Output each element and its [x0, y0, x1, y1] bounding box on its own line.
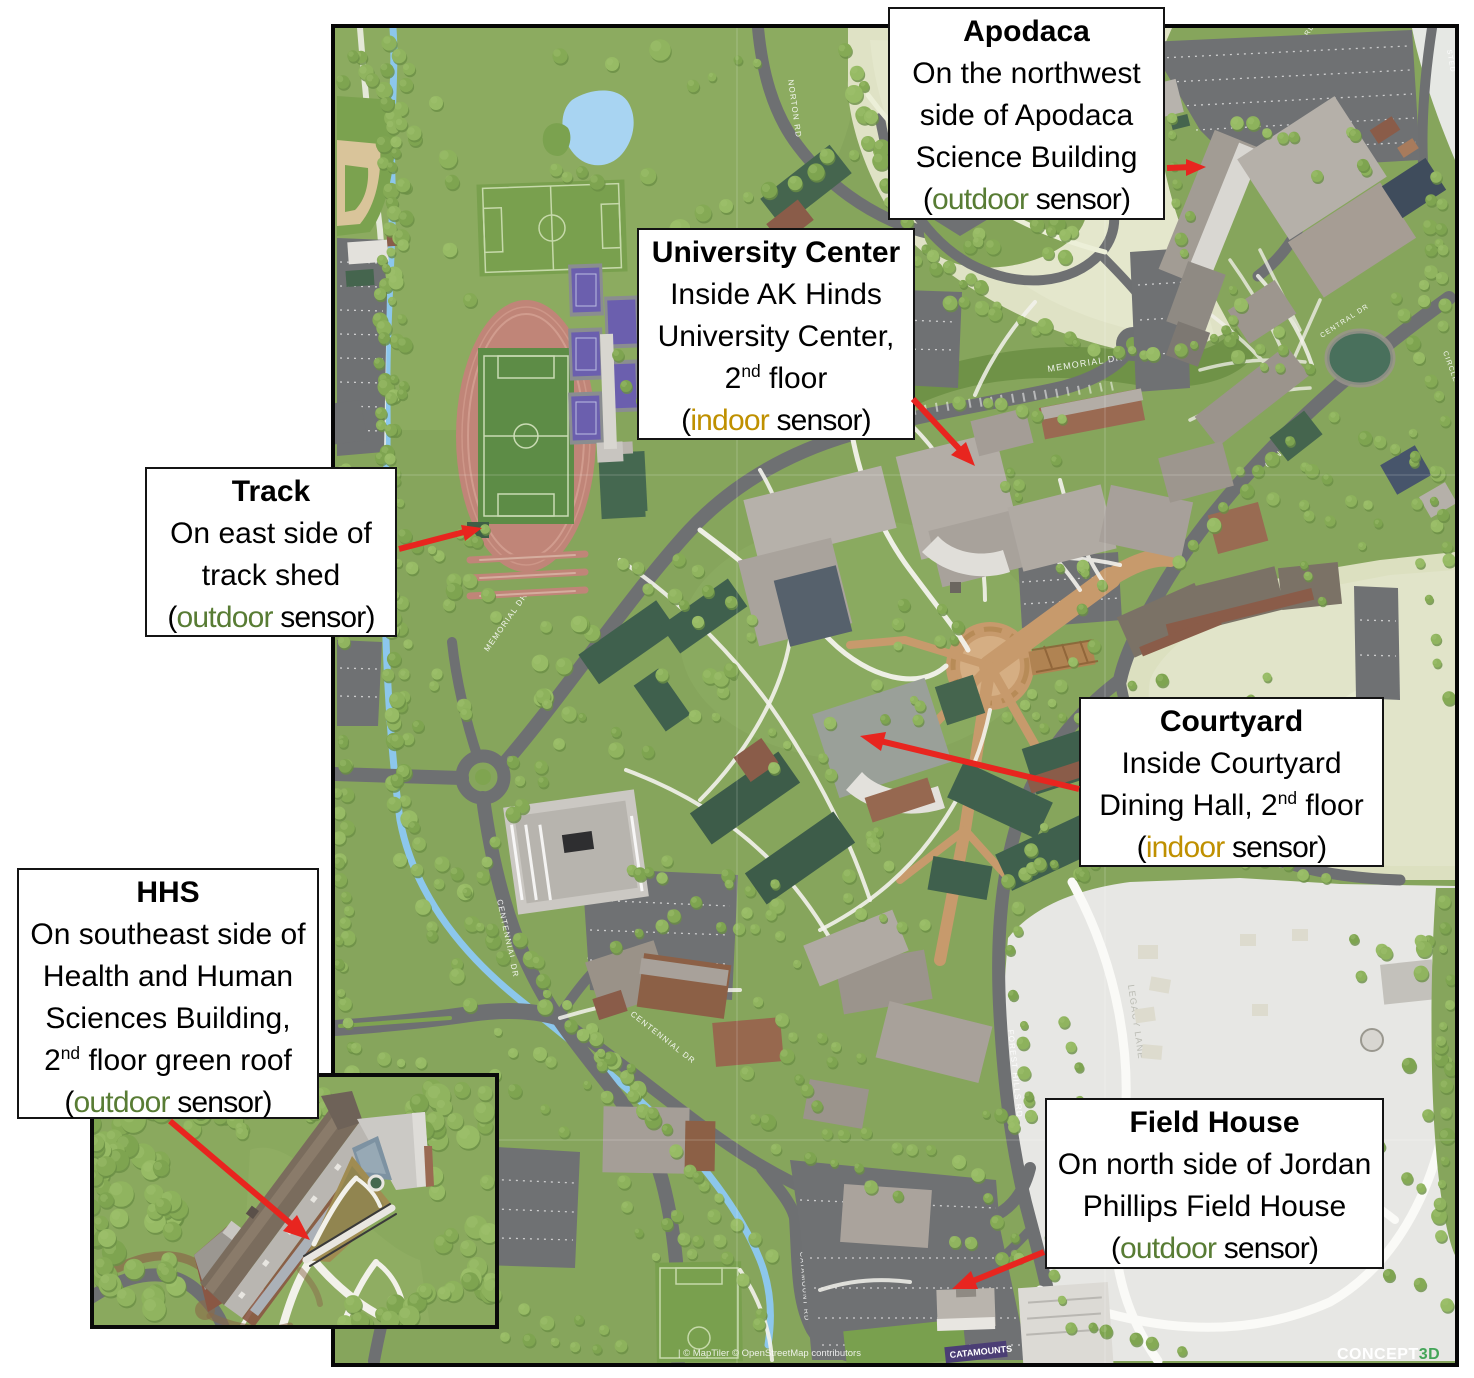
svg-text:CONCEPT3D: CONCEPT3D [1337, 1346, 1440, 1363]
svg-text:| © MapTiler © OpenStreetMap c: | © MapTiler © OpenStreetMap contributor… [678, 1348, 861, 1359]
